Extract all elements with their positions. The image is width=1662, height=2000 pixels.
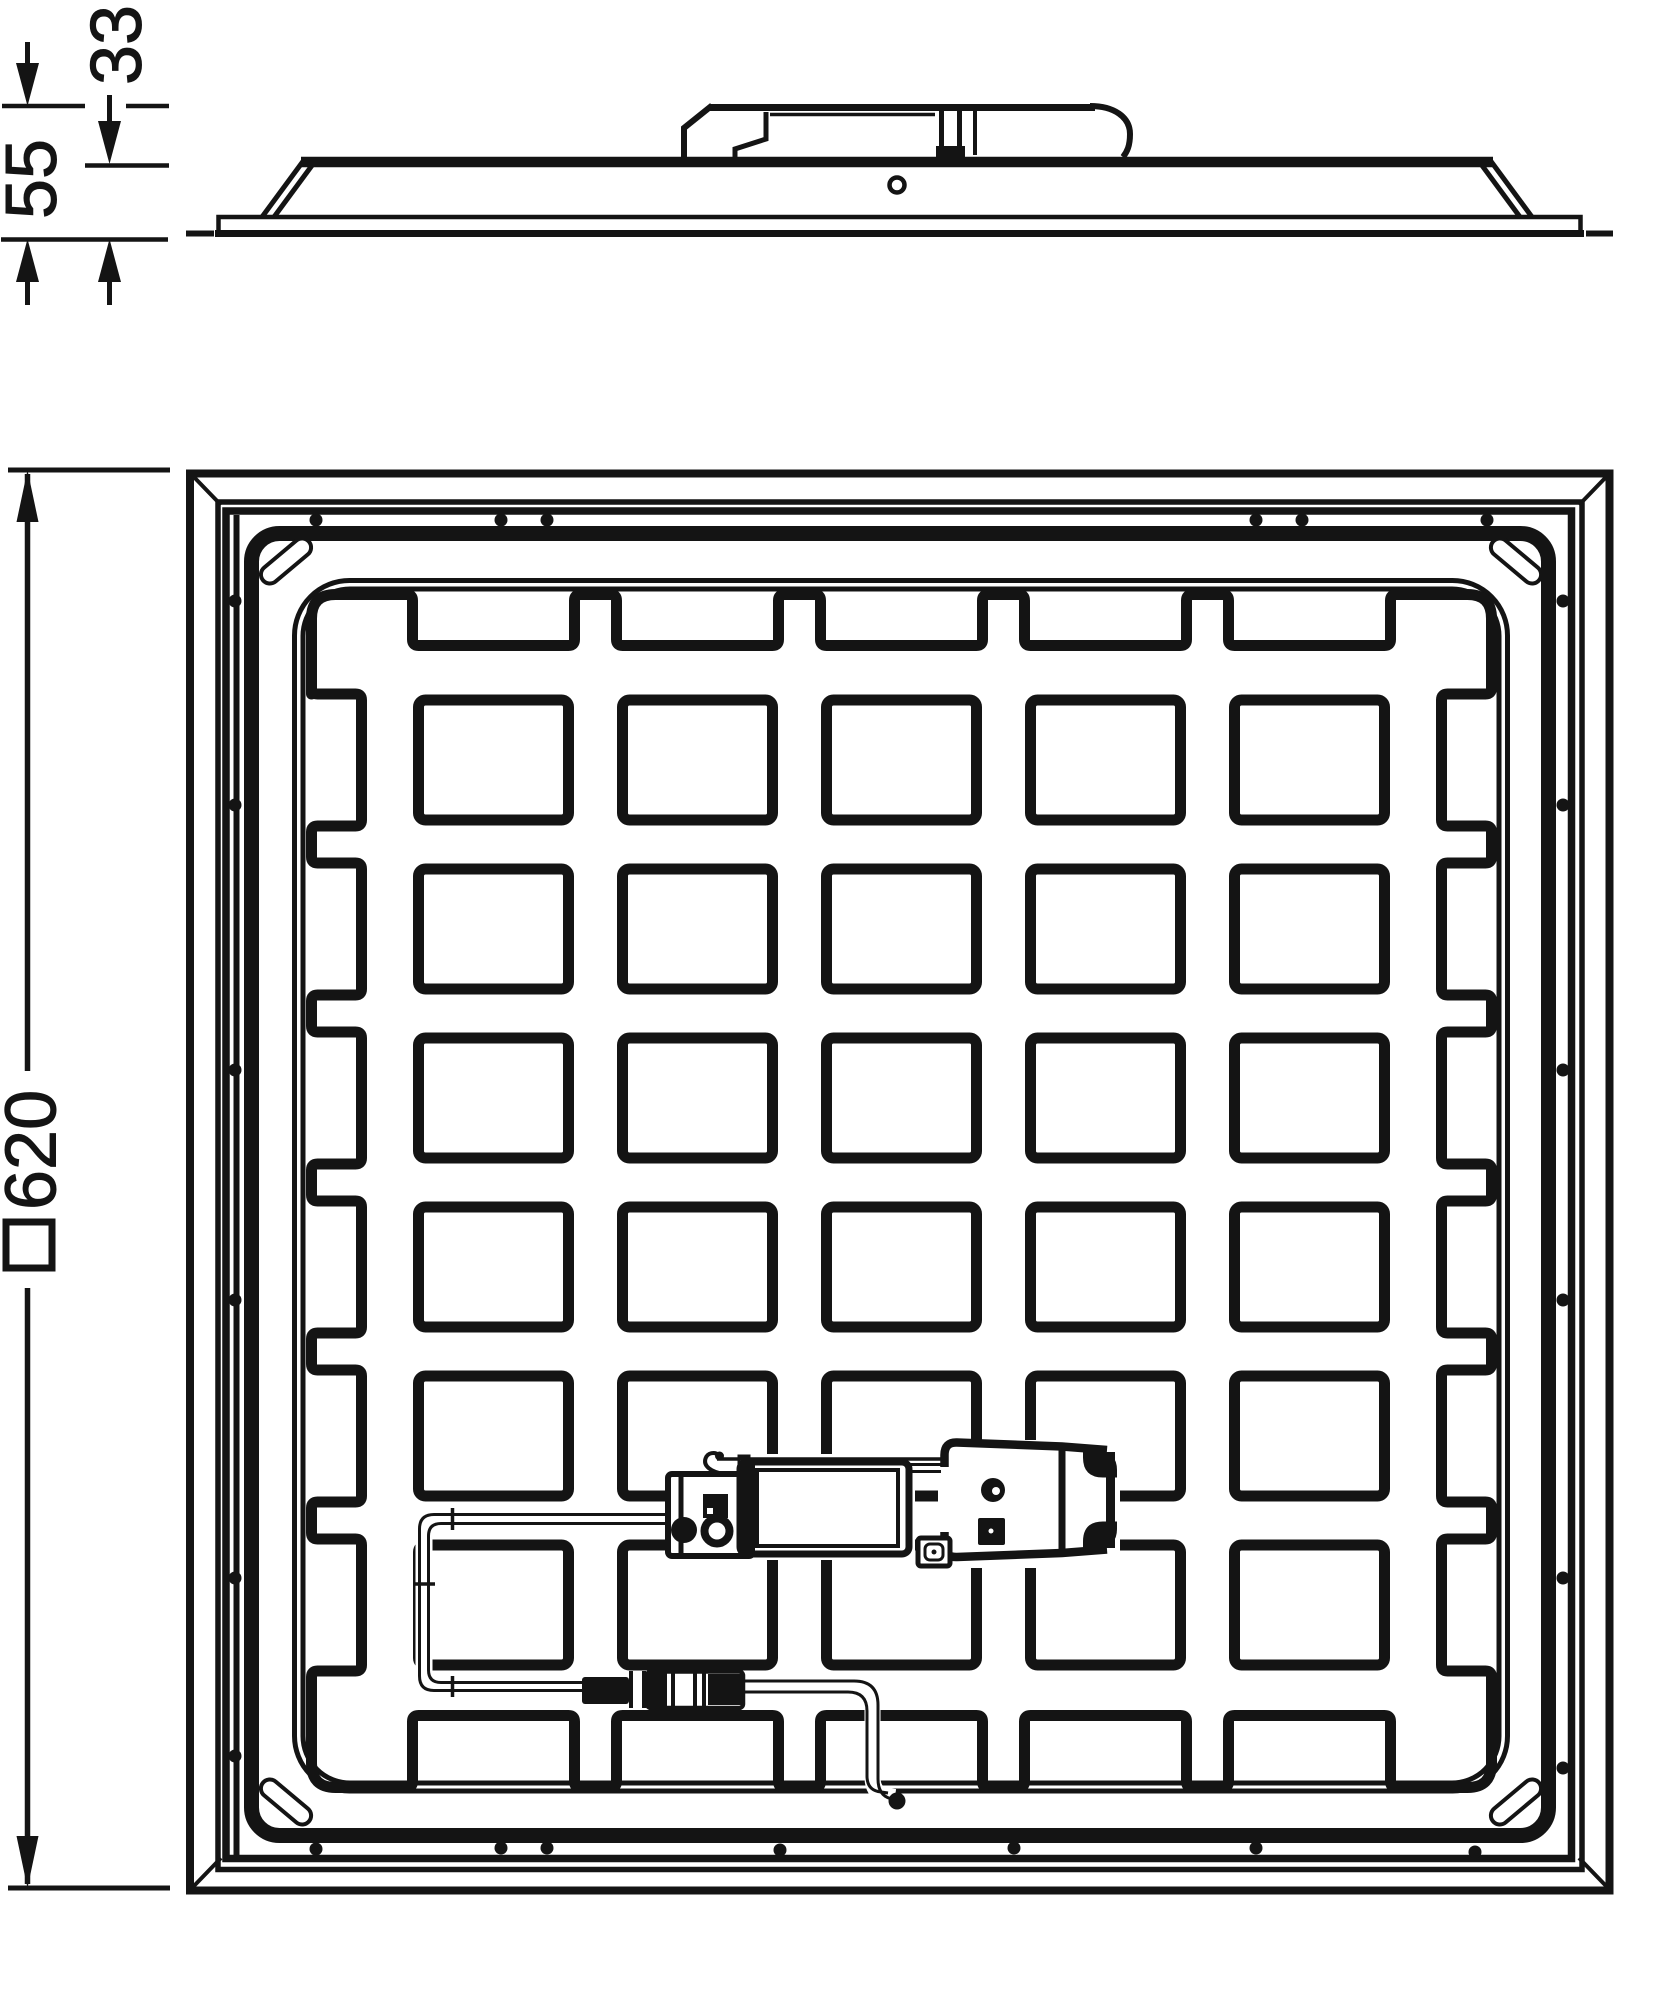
svg-text:55: 55 <box>0 139 72 219</box>
svg-text:33: 33 <box>77 5 157 85</box>
svg-text:620: 620 <box>0 1090 72 1210</box>
